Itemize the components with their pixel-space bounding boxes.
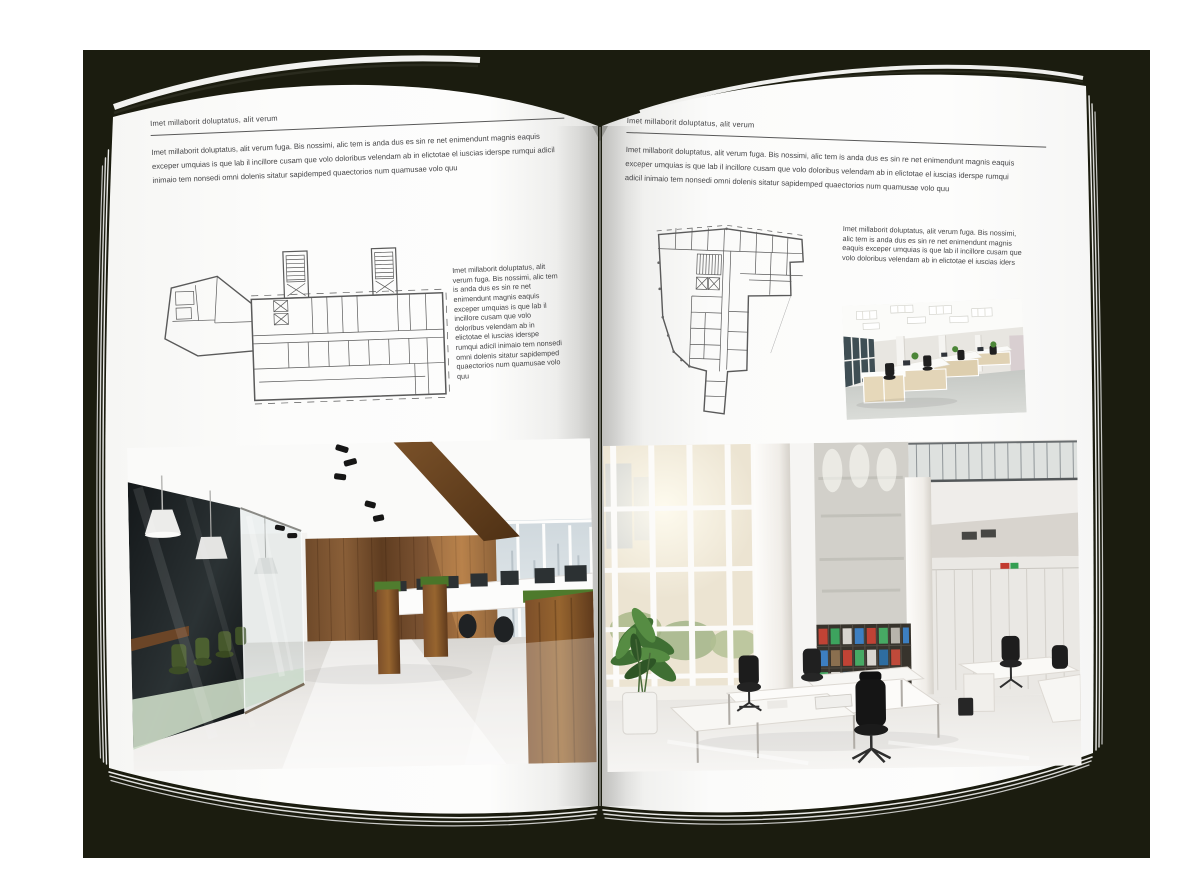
right-page-header-block: Imet millaborit doluptatus, alit verum I… xyxy=(625,116,1047,200)
atrium-office-scene xyxy=(603,439,1082,772)
left-floorplan-figure xyxy=(153,216,451,414)
left-office-photo xyxy=(127,438,597,772)
floor-plan-drawing xyxy=(639,218,838,431)
right-floorplan-figure xyxy=(639,218,838,431)
round-column xyxy=(754,443,794,702)
drawing-sheet xyxy=(815,694,852,709)
right-caption-text: Imet millaborit doluptatus, alit verum f… xyxy=(842,224,1026,268)
stair-tower xyxy=(371,248,397,295)
mezzanine-balcony xyxy=(908,439,1078,558)
stair-tower xyxy=(283,251,309,298)
left-caption-text: Imet millaborit doluptatus, alit verum f… xyxy=(452,261,564,381)
waste-bin xyxy=(958,698,973,716)
elevator-core xyxy=(273,300,288,325)
office-workstations-scene xyxy=(842,298,1027,419)
far-door xyxy=(1009,335,1025,372)
safety-sign xyxy=(1000,563,1009,569)
book-mockup-stage: Imet millaborit doluptatus, alit verum I… xyxy=(0,0,1200,891)
stair-core xyxy=(696,254,721,290)
loft-office-scene xyxy=(127,438,597,772)
floor-plan-drawing xyxy=(153,216,451,414)
office-chair xyxy=(1052,645,1068,669)
exit-sign xyxy=(1010,563,1018,569)
right-office-photo xyxy=(603,439,1082,772)
small-office-photo xyxy=(842,298,1027,419)
office-chair xyxy=(801,648,824,681)
concrete-wall xyxy=(814,442,911,627)
annex-wing xyxy=(163,275,253,357)
